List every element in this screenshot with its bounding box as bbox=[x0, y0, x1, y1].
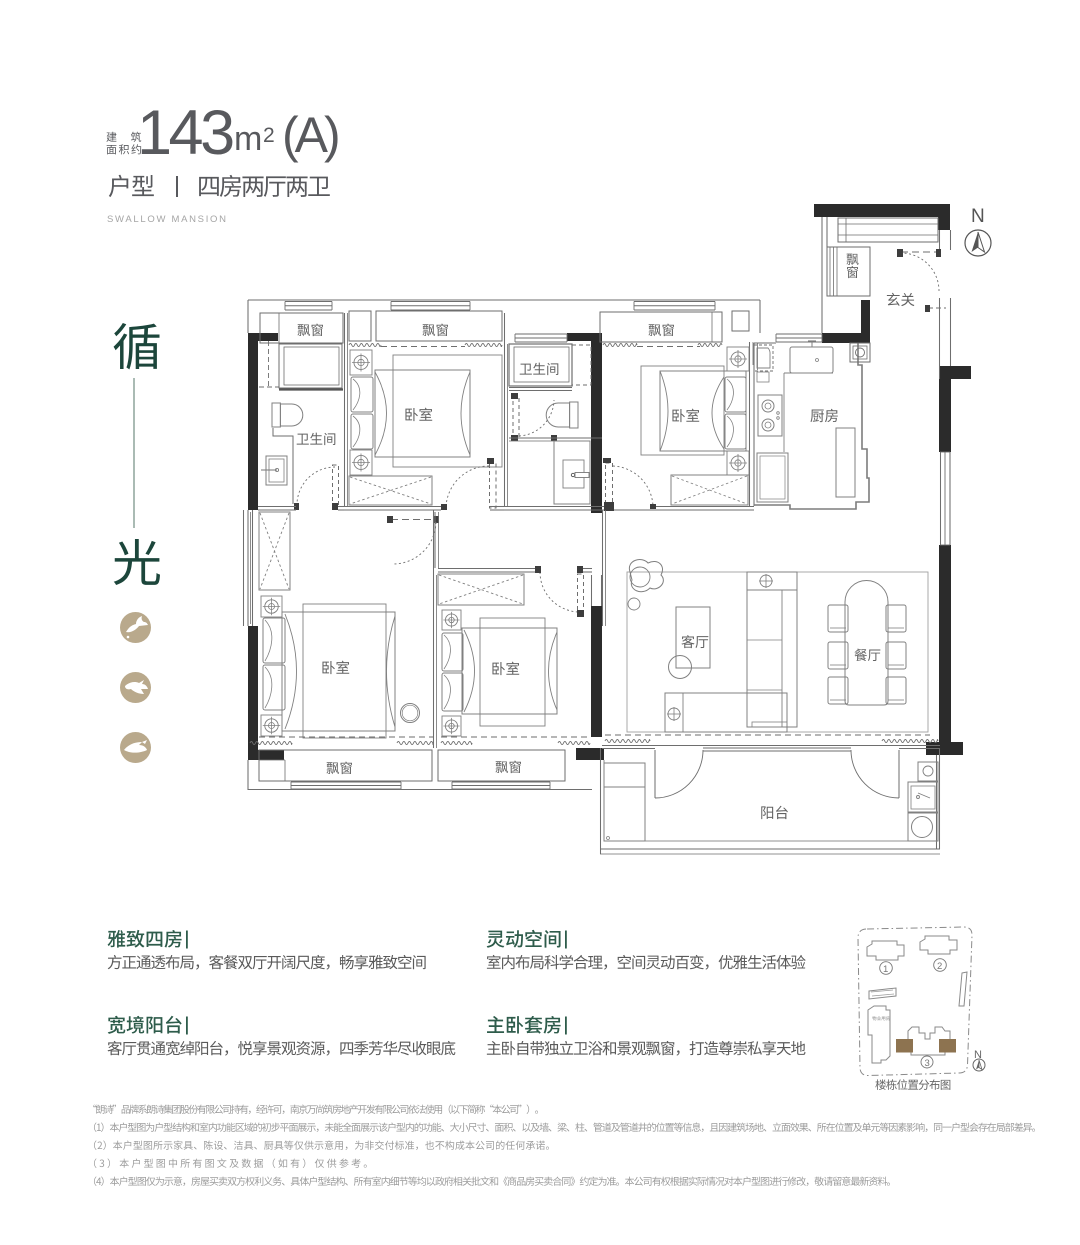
svg-text:143: 143 bbox=[137, 98, 233, 168]
svg-text:(A): (A) bbox=[282, 107, 338, 163]
svg-text:2: 2 bbox=[937, 961, 942, 972]
svg-text:1: 1 bbox=[883, 964, 888, 975]
svg-text:m: m bbox=[234, 120, 262, 158]
svg-text:3: 3 bbox=[925, 1058, 930, 1069]
svg-text:2: 2 bbox=[263, 124, 275, 147]
svg-text:N: N bbox=[971, 206, 985, 227]
svg-text:SWALLOW MANSION: SWALLOW MANSION bbox=[107, 214, 228, 225]
